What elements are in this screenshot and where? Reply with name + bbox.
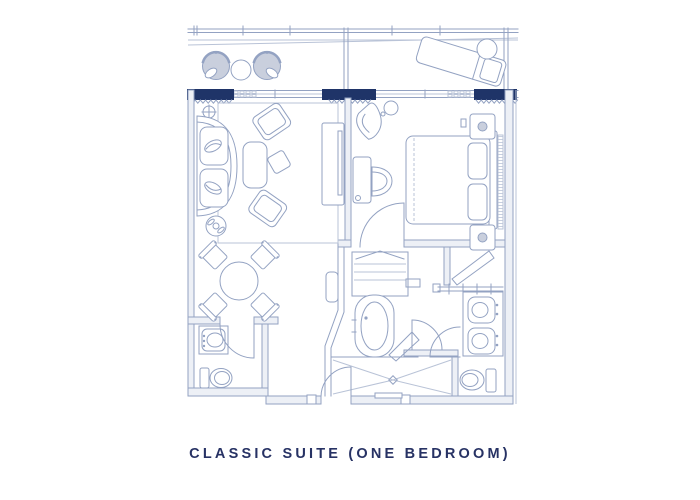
toilet — [460, 369, 496, 396]
window-wall — [187, 89, 518, 103]
dining-area — [198, 240, 281, 323]
reading-chair — [351, 101, 398, 141]
luggage-rack — [452, 251, 494, 285]
balcony-railing — [188, 26, 518, 45]
nightstand — [461, 114, 495, 139]
desk-chair — [372, 167, 392, 196]
wall-column — [307, 395, 316, 404]
side-table — [267, 150, 292, 175]
toilet — [200, 368, 232, 388]
bathroom — [326, 251, 503, 396]
floorplan-page: CLASSIC SUITE (ONE BEDROOM) — [0, 0, 700, 500]
balcony — [188, 26, 518, 90]
sofa — [197, 116, 237, 216]
king-bed — [406, 131, 497, 229]
floor-threshold — [375, 393, 402, 398]
dining-chair — [249, 240, 281, 272]
hall-console — [326, 272, 338, 302]
round-table — [231, 60, 251, 80]
desk — [353, 157, 371, 203]
nightstand — [470, 225, 495, 250]
lounge-chair — [254, 51, 281, 80]
lounge-chair — [203, 51, 230, 80]
shower — [331, 357, 451, 394]
living-room — [197, 101, 344, 243]
headboard-wall-texture — [498, 135, 503, 229]
plant-table — [206, 216, 226, 236]
armchair — [251, 101, 293, 141]
powder-room — [199, 324, 254, 388]
table-lamp — [478, 233, 487, 242]
dining-chair — [198, 240, 230, 272]
table-lamp — [478, 122, 487, 131]
tv-console — [322, 123, 344, 205]
dining-table — [220, 262, 258, 300]
plan-caption: CLASSIC SUITE (ONE BEDROOM) — [0, 446, 700, 462]
bathroom-door — [412, 320, 442, 350]
wardrobe-shelves — [352, 251, 420, 296]
armchair — [247, 188, 289, 228]
bedroom-door — [360, 203, 404, 247]
floorplan-drawing — [0, 0, 700, 500]
bathtub — [352, 295, 394, 357]
double-vanity-sink — [463, 292, 503, 356]
bedroom — [351, 101, 503, 250]
round-table — [477, 39, 497, 59]
coffee-table — [243, 142, 267, 188]
